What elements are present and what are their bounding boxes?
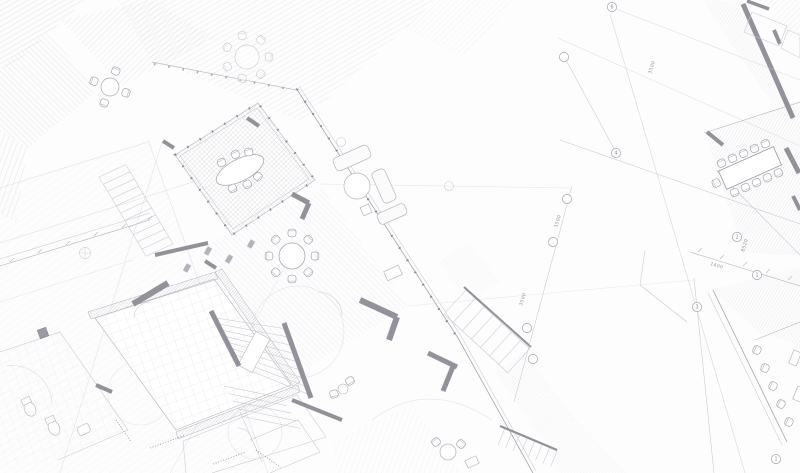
- grid-bubble: [522, 323, 531, 332]
- grid-bubble: 4: [611, 148, 620, 157]
- blueprint-page: 642131 35003500350085201400: [0, 0, 800, 473]
- svg-text:6: 6: [610, 5, 613, 11]
- svg-text:1: 1: [774, 457, 777, 463]
- grid-bubble: [528, 354, 537, 363]
- grid-bubble: [562, 194, 571, 203]
- grid-bubble: 1: [771, 454, 780, 463]
- svg-text:2: 2: [735, 235, 738, 241]
- grid-bubble: [559, 52, 568, 61]
- svg-text:4: 4: [614, 151, 617, 157]
- grid-bubble: 2: [732, 232, 741, 241]
- grid-bubble: 1: [752, 270, 761, 279]
- svg-text:1: 1: [755, 273, 758, 279]
- svg-text:3: 3: [695, 305, 698, 311]
- blueprint-drawing: 642131 35003500350085201400: [0, 0, 800, 473]
- grid-bubble: 6: [607, 2, 616, 11]
- grid-bubble: 3: [692, 302, 701, 311]
- grid-bubble: [548, 237, 557, 246]
